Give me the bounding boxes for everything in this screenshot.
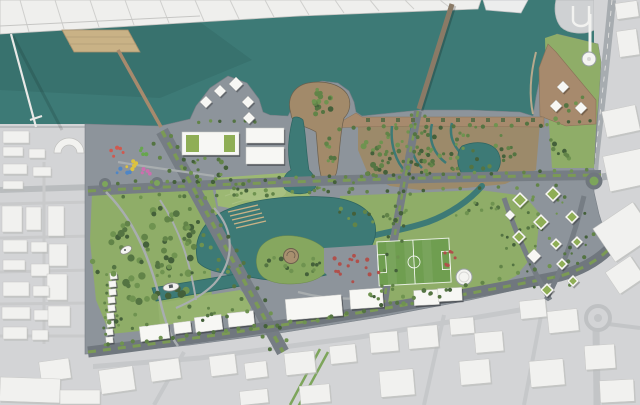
ns-street-trees-east [404, 209, 407, 212]
terrace-house [106, 337, 114, 344]
lagoon-lawn-trees [363, 210, 367, 214]
cove-stem-trees [324, 142, 329, 147]
boulevard-trees-east [255, 286, 259, 290]
deck-edge-shrubs [197, 121, 200, 124]
avenue-street-trees [329, 314, 333, 318]
avenue-street-trees [211, 330, 215, 334]
delta-west-trees [430, 159, 435, 164]
left-context-block [3, 181, 23, 189]
west-woodland-trees [165, 293, 172, 300]
district-street-trees [583, 212, 586, 215]
ew-street-trees-south [195, 195, 199, 199]
waterfront-building [246, 147, 284, 164]
boulevard-trees-west [152, 142, 156, 146]
promenade-hedge [439, 126, 443, 130]
event-plaza-red-trees [338, 262, 342, 266]
ne-lawn-trees [574, 101, 578, 105]
cove-head-trees [313, 111, 318, 116]
southwest-park-trees [145, 323, 149, 327]
delta-east-trees [502, 159, 505, 162]
lagoon-lawn-trees [382, 215, 385, 218]
west-woodland-trees [135, 298, 142, 305]
boulevard-trees-east [219, 223, 223, 227]
district-street-trees [534, 245, 537, 248]
district-street-trees [592, 232, 596, 236]
boulevard-trees-west [209, 246, 213, 250]
playground-dots-pink [148, 172, 152, 176]
ew-street-trees-south [232, 193, 236, 197]
playground-dots-blue [118, 167, 122, 171]
delta-east-trees [502, 154, 506, 158]
playground-dots-green [139, 149, 142, 152]
left-context-block [3, 282, 29, 296]
delta-east-trees [456, 167, 460, 171]
ne-deck-trees [567, 120, 570, 123]
deck-edge-shrubs [209, 119, 212, 122]
delta-west-trees [428, 163, 431, 166]
mound-trees [279, 257, 284, 262]
marina-lawn-trees [177, 316, 181, 320]
west-woodland-trees [191, 230, 196, 235]
basin-north-trees [239, 264, 242, 267]
hill-trees [244, 189, 248, 193]
playground-dots-pink [142, 167, 146, 171]
ns-street-trees-west [405, 145, 408, 148]
west-woodland-trees [163, 236, 168, 241]
event-plaza-red-trees [356, 260, 360, 264]
orchard-trees [203, 157, 206, 160]
ns-street-trees-west [398, 176, 401, 179]
ns-street-trees-west [402, 160, 405, 163]
terrace-garden-trees [104, 316, 107, 319]
avenue-street-trees [412, 296, 416, 300]
promenade-hedge [525, 122, 529, 126]
ew-street-trees-north [229, 178, 233, 182]
boulevard-trees-west [182, 194, 186, 198]
south-context-block [519, 299, 547, 320]
pitch-south-trees [438, 295, 442, 299]
promenade-hedge [394, 126, 398, 130]
district-street-trees [553, 276, 555, 278]
mound-trees [267, 259, 271, 263]
playground-dots-red [118, 147, 122, 151]
mound-trees [289, 269, 293, 273]
avenue-street-trees [345, 311, 349, 315]
district-street-trees [512, 264, 515, 267]
west-woodland-trees [152, 212, 157, 217]
west-woodland-trees [129, 296, 136, 303]
ns-street-trees-east [416, 146, 419, 149]
boardwalk-planter [471, 118, 475, 122]
boulevard-trees-east [242, 261, 246, 265]
lagoon-lawn-trees [399, 211, 404, 216]
terrace-house [108, 305, 116, 312]
ns-street-trees-east [394, 269, 397, 272]
mound-trees [315, 263, 319, 267]
boulevard-trees-east [263, 298, 267, 302]
playground-dots-green [144, 152, 148, 156]
district-street-trees [563, 195, 567, 199]
west-woodland-trees [108, 239, 114, 245]
playground-dots-pink [141, 171, 144, 174]
boulevard-trees-east [169, 134, 173, 138]
delta-west-trees [416, 135, 420, 139]
left-context-block [3, 260, 25, 270]
delta-west-trees [391, 152, 394, 155]
south-context-block [209, 353, 237, 376]
avenue-street-trees [145, 339, 149, 343]
district-street-trees [527, 211, 530, 214]
district-street-trees [501, 234, 504, 237]
left-context-block [26, 207, 41, 230]
ne-lawn-trees [557, 152, 560, 155]
delta-east-trees [509, 155, 513, 159]
cove-head-trees [315, 88, 319, 92]
west-woodland-trees [187, 255, 194, 262]
stream-bank-trees [465, 211, 469, 215]
ns-street-trees-west [406, 130, 409, 133]
ns-street-trees-east [391, 284, 394, 287]
ns-street-trees-west [387, 235, 390, 238]
west-woodland-trees [125, 221, 131, 227]
ne-lawn-trees [553, 116, 558, 121]
event-plaza-red-trees [365, 266, 368, 269]
east-bulge-trees [364, 140, 369, 145]
ew-street-trees-south [497, 185, 501, 189]
east-bulge-trees [370, 162, 376, 168]
delta-west-trees [427, 147, 431, 151]
southwest-park-trees [117, 324, 120, 327]
masterplan-screenshot [0, 0, 640, 405]
ne-deck-trees [578, 120, 581, 123]
southwest-park-trees [133, 313, 137, 317]
boulevard-trees-west [232, 284, 236, 288]
delta-east-trees [500, 147, 504, 151]
west-woodland-trees [149, 223, 156, 230]
ew-street-trees-south [536, 183, 540, 187]
boulevard-trees-west [217, 258, 221, 262]
ne-lawn-trees [549, 138, 553, 142]
west-woodland-trees [191, 244, 197, 250]
ne-lawn-trees [552, 142, 557, 147]
pitch-south-trees [401, 301, 406, 306]
district-street-trees [556, 213, 558, 215]
delta-east-trees [466, 134, 470, 138]
sculpture-mark [124, 249, 126, 251]
promenade-hedge [424, 125, 428, 129]
south-context-block [459, 359, 491, 386]
event-plaza-red-trees [347, 264, 350, 267]
ns-street-trees-east [400, 239, 403, 242]
lagoon-lawn-trees [353, 222, 358, 227]
east-bulge-trees [365, 172, 370, 177]
ns-street-trees-west [383, 269, 386, 272]
avenue-street-trees [548, 264, 552, 268]
cove-head-trees [328, 96, 332, 100]
delta-east-trees [471, 149, 474, 152]
west-woodland-trees [146, 248, 150, 252]
delta-east-trees [513, 152, 517, 156]
delta-west-trees [401, 140, 404, 143]
marina-lawn-trees [213, 312, 216, 315]
playground-dots-red [109, 149, 113, 153]
event-plaza-red-trees [351, 280, 354, 283]
promenade-hedge [382, 124, 386, 128]
left-context-block [33, 286, 49, 296]
east-red-trees [454, 256, 457, 259]
delta-west-trees [424, 169, 429, 174]
delta-west-trees [387, 133, 391, 137]
district-street-trees [561, 201, 563, 203]
boardwalk-planter [366, 118, 370, 122]
boat-cabin [169, 284, 173, 288]
boardwalk-planter [501, 118, 505, 122]
delta-east-trees [462, 133, 466, 137]
west-woodland-trees [168, 236, 173, 241]
ne-deck-trees [588, 119, 591, 122]
avenue-street-trees [533, 267, 537, 271]
delta-west-trees [429, 150, 432, 153]
orchard-trees [197, 168, 200, 171]
boulevard-trees-west [252, 324, 256, 328]
west-woodland-trees [143, 241, 149, 247]
avenue-building [414, 289, 440, 305]
ew-street-trees-south [422, 189, 426, 193]
promenade-hedge [510, 124, 514, 128]
stream-bank-trees [473, 201, 476, 204]
avenue-street-trees [497, 277, 501, 281]
marina-lawn-trees [225, 315, 229, 319]
stream-bank-trees [480, 209, 483, 212]
ne-lawn-trees [564, 103, 569, 108]
avenue-street-trees [582, 255, 586, 259]
delta-west-trees [397, 149, 402, 154]
boardwalk-planter [411, 118, 415, 122]
boardwalk-planter [441, 118, 445, 122]
avenue-street-trees [224, 329, 228, 333]
boardwalk-planter [426, 118, 430, 122]
left-context-block [2, 206, 22, 232]
ew-street-trees-north [505, 171, 509, 175]
hill-trees [236, 188, 239, 191]
delta-east-trees [494, 144, 498, 148]
boulevard-trees-east [203, 196, 207, 200]
ne-lawn-trees [567, 109, 571, 113]
delta-west-trees [400, 169, 403, 172]
waterfront-building [246, 128, 284, 143]
boulevard-trees-east [211, 209, 215, 213]
south-context-block [239, 389, 268, 405]
west-woodland-trees [141, 234, 148, 241]
avenue-street-trees [264, 324, 268, 328]
roundabout-green [154, 180, 160, 186]
south-context-block [0, 377, 60, 403]
east-bulge-trees [378, 152, 383, 157]
ew-street-trees-south [515, 186, 519, 190]
pitch-south-trees [410, 302, 414, 306]
mound-trees [283, 264, 287, 268]
south-context-block [449, 317, 474, 335]
south-context-block [329, 344, 357, 365]
playground-dots-blue [128, 170, 132, 174]
marina-lawn-trees [187, 305, 191, 309]
boardwalk-planter [381, 118, 385, 122]
avenue-building [139, 323, 170, 341]
west-woodland-trees [111, 271, 117, 277]
ns-street-trees-west [410, 113, 413, 116]
pitch-south-trees [373, 295, 376, 298]
west-woodland-trees [125, 235, 129, 239]
boardwalk-planter [516, 118, 520, 122]
basin-north-trees [203, 271, 206, 274]
ew-street-trees-south [253, 192, 257, 196]
ew-street-trees-south [478, 186, 482, 190]
cove-head-trees [315, 107, 319, 111]
west-woodland-trees [169, 217, 173, 221]
west-woodland-trees [112, 265, 117, 270]
deck-edge-shrubs [218, 120, 221, 123]
west-woodland-trees [127, 254, 134, 261]
terrace-house [108, 297, 116, 304]
delta-east-trees [481, 166, 485, 170]
avenue-building [227, 311, 254, 328]
lagoon-lawn-trees [388, 217, 391, 220]
west-woodland-trees [90, 259, 95, 264]
playground-dots-yellow [125, 165, 128, 168]
ew-street-trees-north [522, 171, 526, 175]
ew-street-trees-north [374, 174, 378, 178]
ns-street-trees-east [423, 115, 426, 118]
promenade-hedge [337, 127, 341, 131]
playground-dots-yellow [134, 161, 138, 165]
basin-north-trees [180, 273, 183, 276]
boulevard-trees-west [245, 309, 249, 313]
ew-street-trees-south [139, 196, 143, 200]
district-street-trees [505, 247, 508, 250]
event-plaza-red-trees [365, 258, 369, 262]
ew-street-trees-north [407, 172, 411, 176]
avenue-street-trees [429, 291, 433, 295]
boulevard-trees-east [176, 145, 180, 149]
delta-west-trees [438, 154, 442, 158]
avenue-street-trees [316, 318, 320, 322]
boulevard-trees-east [269, 311, 273, 315]
midpark-trees [318, 187, 321, 190]
orchard-trees [183, 166, 187, 170]
delta-west-trees [388, 157, 392, 161]
mound-trees [301, 263, 306, 268]
ns-street-trees-east [389, 301, 392, 304]
basin-north-trees [216, 268, 219, 271]
promenade-hedge [451, 124, 455, 128]
midpark-trees [350, 187, 354, 191]
ew-street-trees-north [311, 175, 315, 179]
boulevard-trees-east [278, 326, 282, 330]
west-woodland-trees [164, 255, 169, 260]
district-street-trees [526, 226, 530, 230]
ew-street-trees-north [150, 180, 154, 184]
ew-street-trees-north [294, 176, 298, 180]
mound-trees [318, 262, 321, 265]
orchard-trees [192, 160, 195, 163]
delta-east-trees [455, 156, 459, 160]
ne-lawn-trees [581, 96, 585, 100]
southwest-park-trees [116, 314, 119, 317]
ns-street-trees-west [385, 253, 388, 256]
terrace-garden-trees [102, 327, 105, 330]
boulevard-trees-east [197, 183, 201, 187]
ew-street-trees-north [344, 175, 348, 179]
ew-street-trees-south [347, 190, 351, 194]
left-context-block [48, 206, 64, 236]
marina-lawn-trees [201, 319, 204, 322]
terrace-garden-trees [104, 343, 107, 346]
boulevard-trees-west [196, 220, 200, 224]
south-context-block [407, 325, 439, 350]
district-street-trees [499, 265, 503, 269]
southwest-park-trees [114, 319, 119, 324]
east-red-trees [443, 251, 446, 254]
pitch-south-trees [445, 288, 449, 292]
delta-west-trees [384, 153, 388, 157]
boulevard-trees-east [235, 249, 239, 253]
ew-street-trees-south [121, 195, 125, 199]
boardwalk-planter [531, 118, 535, 122]
avenue-street-trees [197, 331, 201, 335]
west-woodland-trees [200, 243, 205, 248]
context-interchange-core [594, 314, 602, 322]
lagoon-lawn-trees [393, 218, 398, 223]
lagoon-lawn-trees [347, 217, 350, 220]
mound-trees [264, 263, 268, 267]
avenue-street-trees [288, 320, 292, 324]
round-pavilion [456, 269, 472, 285]
south-context-block [60, 390, 100, 404]
delta-west-trees [406, 165, 411, 170]
south-context-block [584, 344, 616, 370]
avenue-street-trees [480, 281, 484, 285]
ew-street-trees-south [402, 189, 406, 193]
west-woodland-trees [118, 230, 125, 237]
green-roof [186, 135, 199, 152]
delta-west-trees [378, 168, 382, 172]
avenue-street-trees [448, 288, 452, 292]
ns-street-trees-east [420, 131, 423, 134]
delta-west-trees [426, 133, 430, 137]
pitch-south-trees [401, 295, 405, 299]
hill-trees [264, 188, 268, 192]
west-woodland-trees [183, 221, 188, 226]
mound-spiral-path [284, 249, 299, 264]
orchard-trees [219, 173, 222, 176]
delta-east-trees [452, 168, 455, 171]
delta-east-trees [455, 143, 458, 146]
ew-street-trees-north [328, 174, 332, 178]
event-plaza-red-trees [352, 254, 356, 258]
orchard-trees [195, 175, 199, 179]
ew-street-trees-north [585, 168, 589, 172]
avenue-street-trees [464, 283, 468, 287]
delta-west-trees [432, 135, 437, 140]
ew-street-trees-north [198, 178, 202, 182]
ew-street-trees-south [365, 190, 369, 194]
promenade-hedge [481, 125, 485, 129]
context-road [0, 303, 92, 304]
ns-street-trees-west [392, 222, 395, 225]
boulevard-trees-west [268, 347, 272, 351]
boulevard-trees-west [240, 297, 244, 301]
east-bulge-trees [379, 163, 384, 168]
